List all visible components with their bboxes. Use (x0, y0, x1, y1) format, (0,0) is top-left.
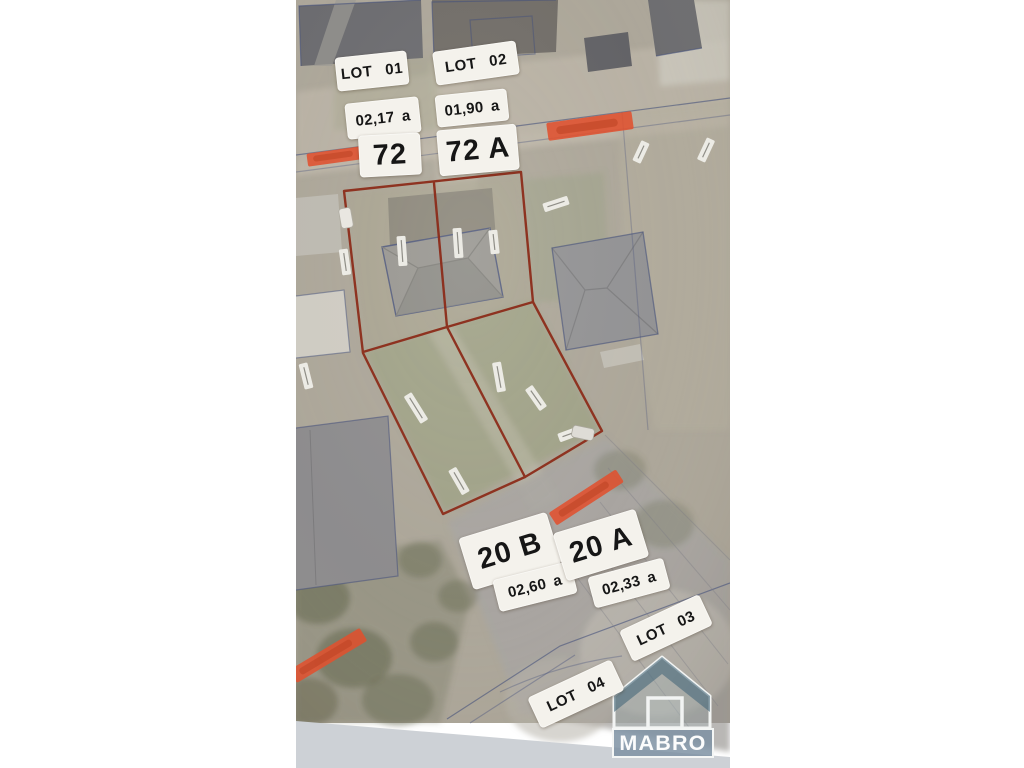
aerial-photo: MABRO LOT 01 LOT 02 02,17 a 01,90 a 72 7… (296, 0, 730, 768)
house-number-72a: 72 A (436, 124, 520, 177)
mabro-logo-text: MABRO (619, 731, 706, 755)
house-number-72: 72 (358, 132, 422, 177)
mabro-window-icon (648, 698, 682, 728)
page: MABRO LOT 01 LOT 02 02,17 a 01,90 a 72 7… (0, 0, 1024, 768)
